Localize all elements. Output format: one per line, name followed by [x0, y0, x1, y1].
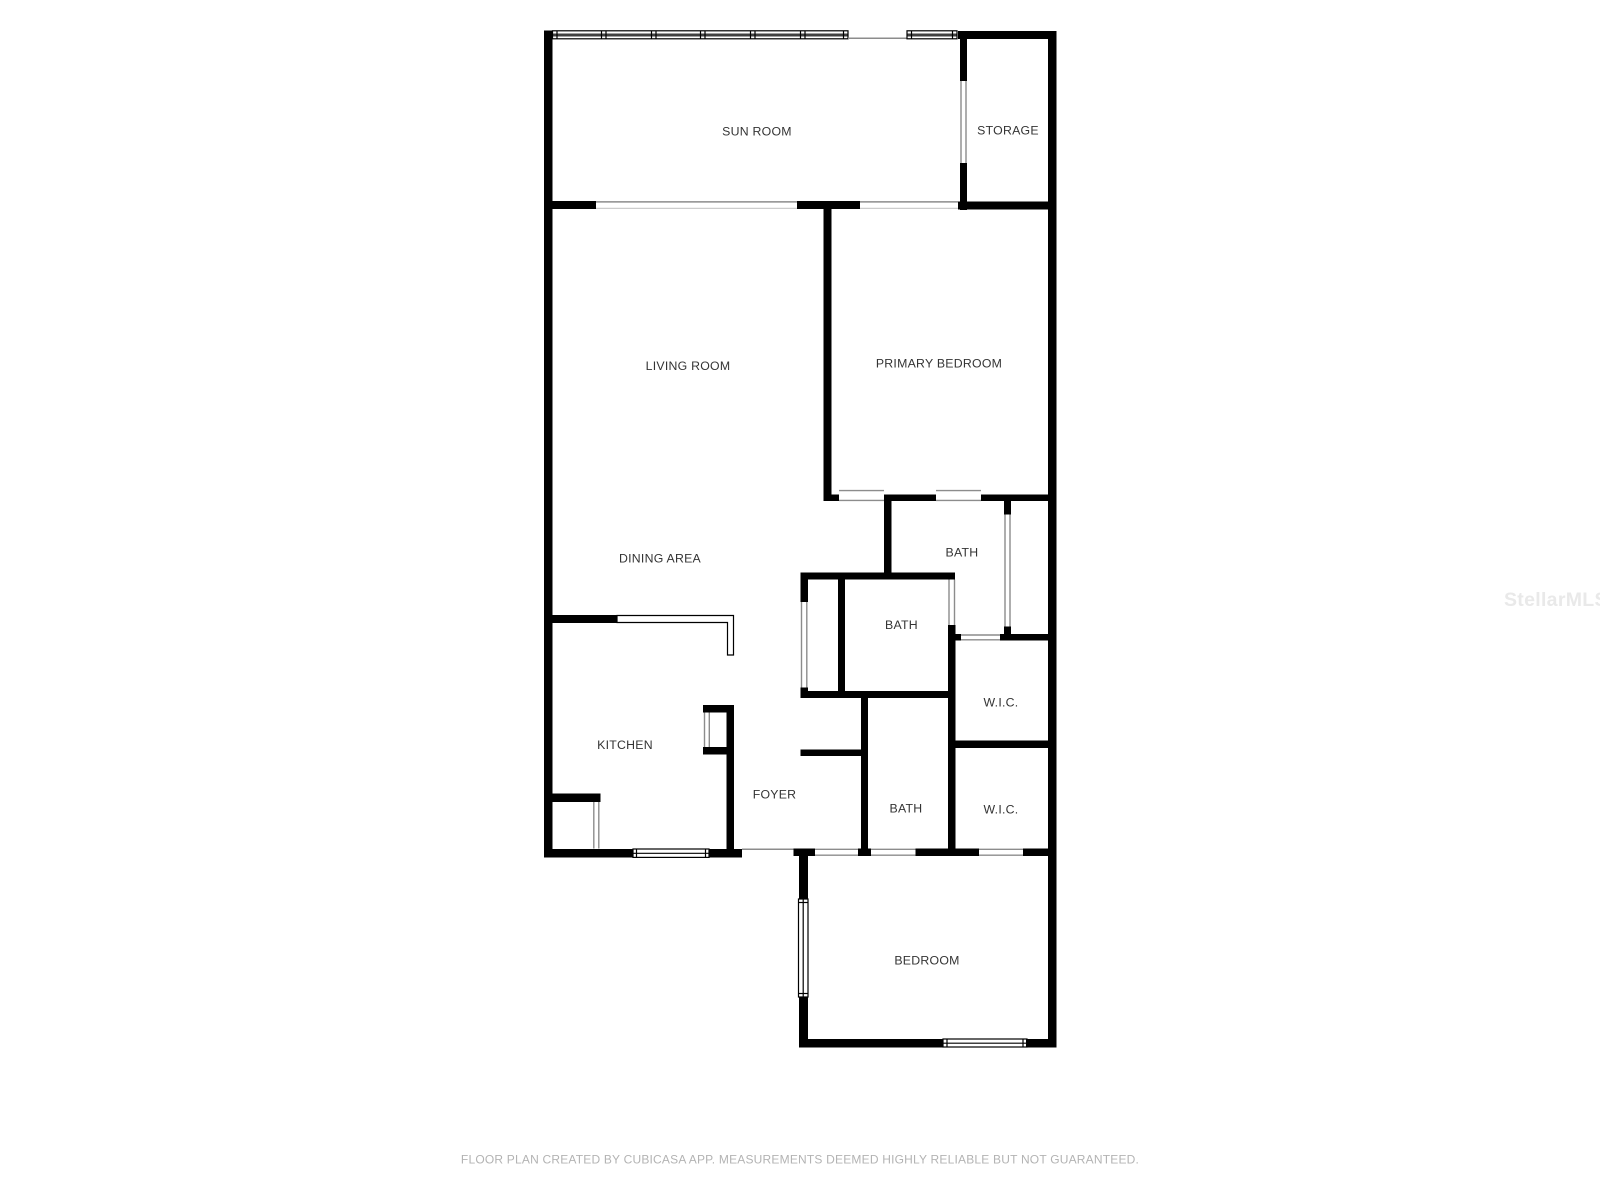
- svg-text:StellarMLS: StellarMLS: [1504, 589, 1600, 611]
- svg-text:KITCHEN: KITCHEN: [597, 738, 653, 752]
- svg-text:BATH: BATH: [890, 801, 923, 815]
- svg-text:BATH: BATH: [885, 618, 918, 632]
- svg-text:STORAGE: STORAGE: [977, 123, 1039, 137]
- svg-text:W.I.C.: W.I.C.: [984, 802, 1019, 816]
- svg-text:BATH: BATH: [946, 545, 979, 559]
- svg-text:PRIMARY BEDROOM: PRIMARY BEDROOM: [876, 356, 1002, 370]
- svg-text:W.I.C.: W.I.C.: [984, 695, 1019, 709]
- svg-text:FLOOR PLAN CREATED BY CUBICASA: FLOOR PLAN CREATED BY CUBICASA APP. MEAS…: [461, 1153, 1139, 1167]
- svg-text:LIVING ROOM: LIVING ROOM: [646, 359, 731, 373]
- svg-text:BEDROOM: BEDROOM: [894, 953, 959, 967]
- svg-text:FOYER: FOYER: [753, 787, 797, 801]
- svg-text:SUN ROOM: SUN ROOM: [722, 124, 792, 138]
- svg-text:DINING AREA: DINING AREA: [619, 551, 702, 565]
